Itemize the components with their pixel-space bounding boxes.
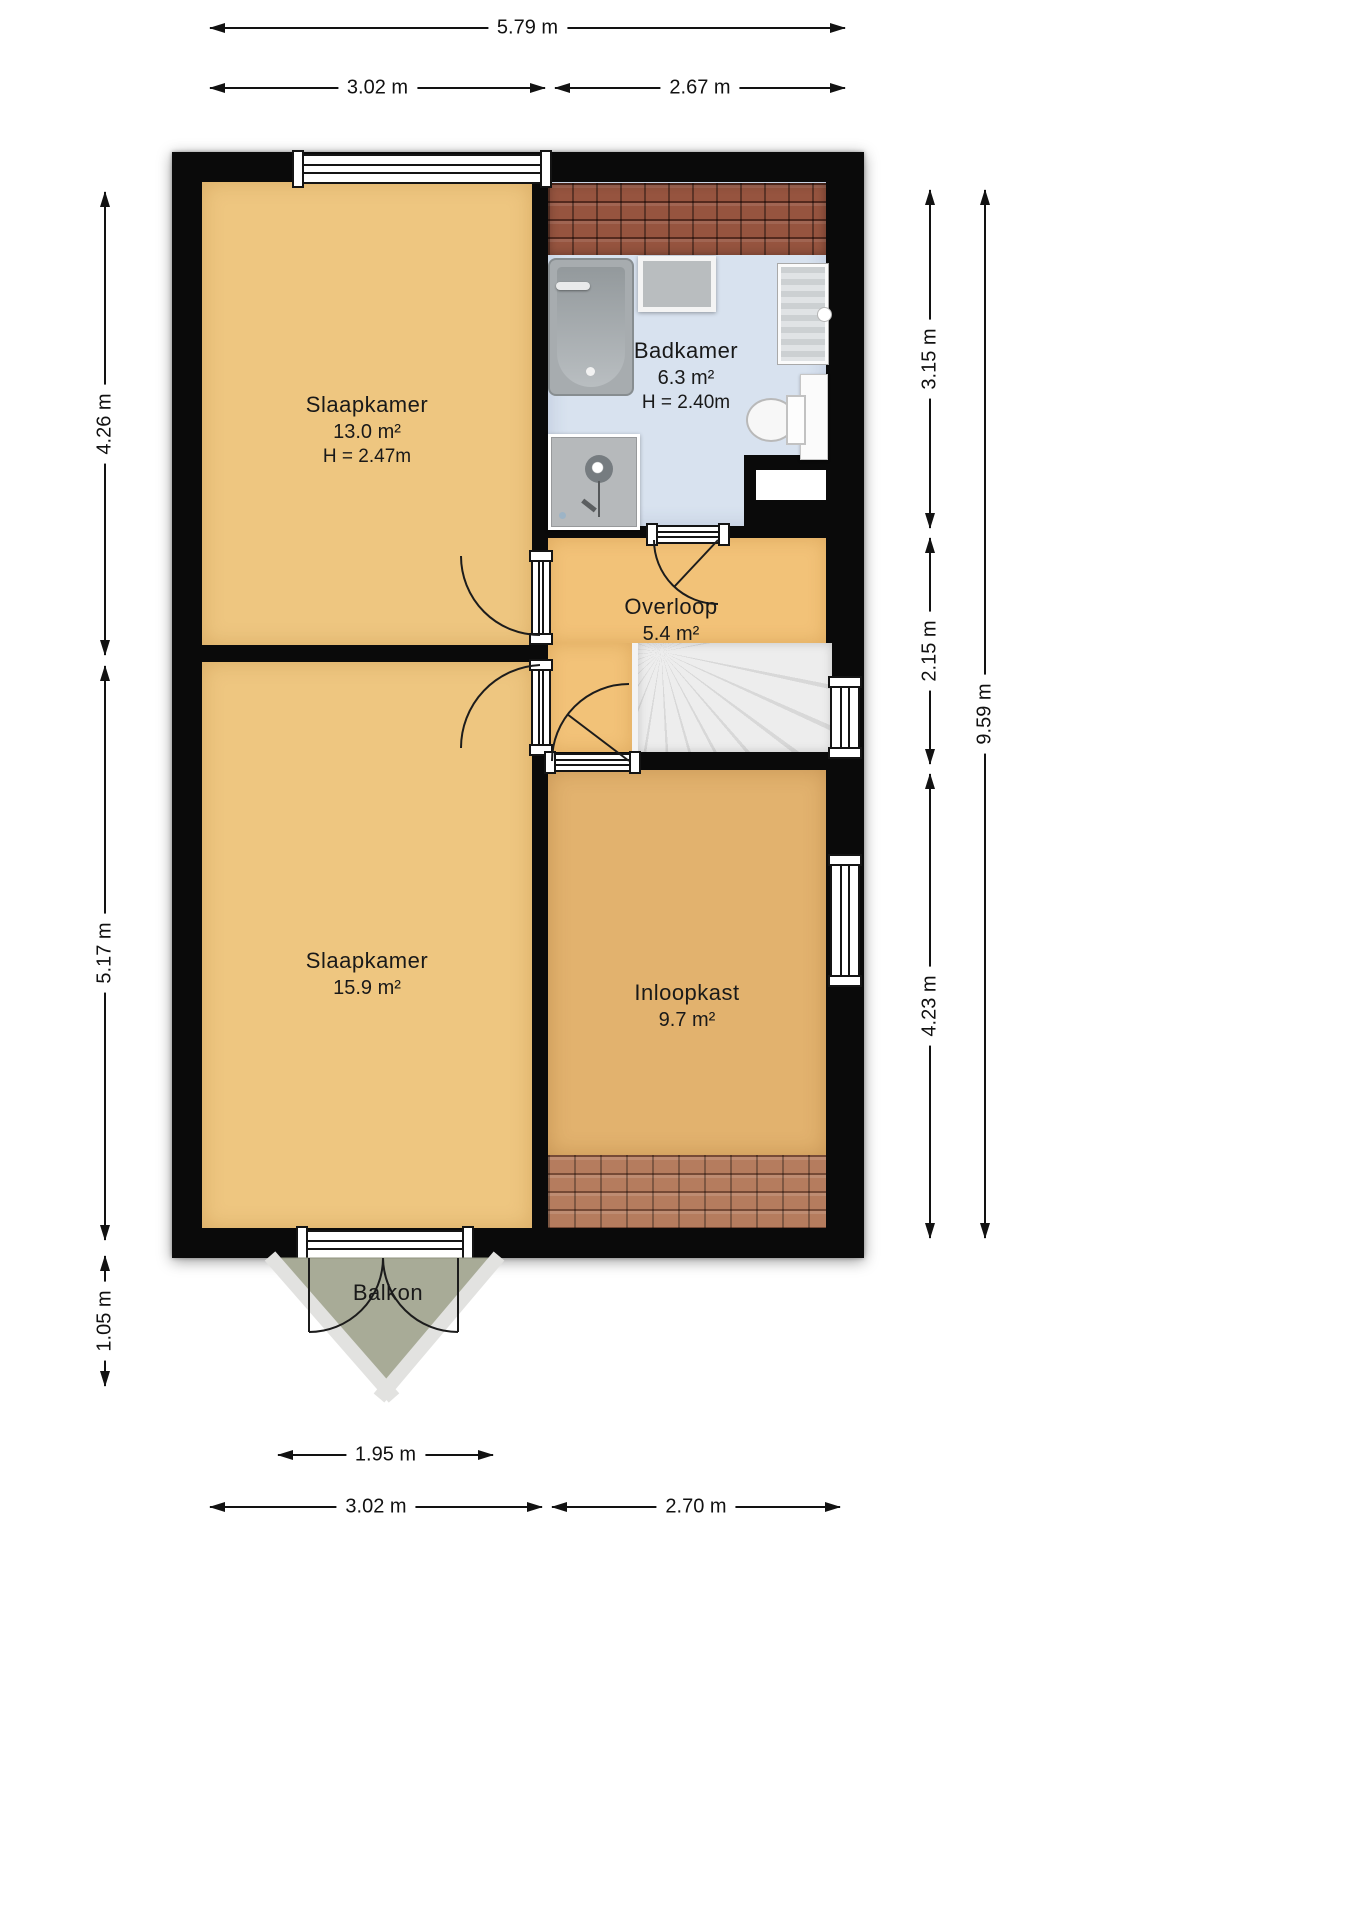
balcony-deck	[276, 1258, 493, 1388]
room-slaapkamer-2-floor	[202, 662, 532, 1228]
door-balkon-double	[303, 1230, 468, 1260]
room-height: H = 2.40m	[566, 392, 806, 414]
room-area: 6.3 m²	[566, 367, 806, 390]
dim-right-inloopkast: 4.23 m	[920, 774, 940, 1238]
room-area: 15.9 m²	[227, 977, 507, 1000]
floor-plan-canvas: Slaapkamer 13.0 m² H = 2.47m Badkamer 6.…	[0, 0, 1358, 1920]
door-slaapkamer-1	[531, 556, 551, 639]
dim-label: 1.95 m	[346, 1443, 425, 1468]
dim-label: 2.15 m	[918, 611, 943, 690]
label-slaapkamer-2: Slaapkamer 15.9 m²	[227, 948, 507, 1000]
door-post	[529, 633, 553, 645]
window-post	[828, 854, 862, 866]
room-height: H = 2.47m	[227, 446, 507, 468]
window-right-inloopkast	[830, 862, 860, 979]
balcony-rail-left	[270, 1256, 394, 1398]
room-area: 5.4 m²	[551, 623, 791, 646]
room-name: Badkamer	[566, 338, 806, 364]
room-name: Slaapkamer	[227, 948, 507, 974]
window-post	[828, 975, 862, 987]
dim-right-badkamer: 3.15 m	[920, 190, 940, 528]
door-post	[718, 523, 730, 546]
room-overloop-floor-left	[548, 643, 632, 752]
door-post	[646, 523, 658, 546]
room-name: Inloopkast	[547, 980, 827, 1006]
shower	[548, 434, 640, 530]
room-inloopkast-floor	[548, 770, 826, 1155]
dim-right-overall: 9.59 m	[975, 190, 995, 1238]
sloped-roof-tiles-top	[548, 183, 826, 255]
dim-left-upper: 4.26 m	[95, 192, 115, 655]
dim-label: 1.05 m	[93, 1281, 118, 1360]
dim-label: 9.59 m	[973, 674, 998, 753]
room-name: Slaapkamer	[227, 392, 507, 418]
label-inloopkast: Inloopkast 9.7 m²	[547, 980, 827, 1032]
bathtub-faucet	[556, 282, 590, 290]
window-top-bedroom	[298, 154, 546, 184]
door-post	[544, 751, 556, 774]
dim-bottom-balcony: 1.95 m	[278, 1445, 493, 1465]
label-overloop: Overloop 5.4 m²	[551, 594, 791, 646]
radiator-valve	[817, 307, 832, 322]
window-post	[828, 676, 862, 688]
window-post	[540, 150, 552, 188]
dim-label: 2.67 m	[660, 76, 739, 101]
balcony-rail-right	[379, 1256, 499, 1398]
dim-top-right-section: 2.67 m	[555, 78, 845, 98]
window-post	[292, 150, 304, 188]
dim-left-balcony: 1.05 m	[95, 1256, 115, 1386]
sloped-roof-tiles-bottom	[548, 1155, 826, 1228]
room-name: Overloop	[551, 594, 791, 620]
door-post	[629, 751, 641, 774]
dim-right-overloop: 2.15 m	[920, 538, 940, 764]
label-badkamer: Badkamer 6.3 m² H = 2.40m	[566, 338, 806, 414]
door-slaapkamer-2	[531, 665, 551, 752]
shower-head	[585, 455, 613, 483]
dim-label: 2.70 m	[656, 1495, 735, 1520]
skylight-window	[638, 256, 716, 312]
shower-drain	[559, 512, 566, 519]
dim-label: 5.17 m	[93, 913, 118, 992]
door-post	[296, 1226, 308, 1262]
door-post	[529, 659, 553, 671]
window-right-stairwell	[830, 684, 860, 751]
door-post	[529, 550, 553, 562]
dim-label: 3.15 m	[918, 319, 943, 398]
dim-label: 4.26 m	[93, 384, 118, 463]
dim-label: 3.02 m	[336, 1495, 415, 1520]
dim-top-left-section: 3.02 m	[210, 78, 545, 98]
dim-top-overall: 5.79 m	[210, 18, 845, 38]
label-balkon: Balkon	[308, 1280, 468, 1306]
dim-bottom-right-section: 2.70 m	[552, 1497, 840, 1517]
shower-handle	[581, 499, 597, 513]
window-post	[828, 747, 862, 759]
label-slaapkamer-1: Slaapkamer 13.0 m² H = 2.47m	[227, 392, 507, 468]
dim-left-lower: 5.17 m	[95, 666, 115, 1240]
wall-niche	[756, 470, 826, 500]
room-name: Balkon	[308, 1280, 468, 1306]
door-post	[462, 1226, 474, 1262]
room-area: 9.7 m²	[547, 1009, 827, 1032]
dim-label: 4.23 m	[918, 966, 943, 1045]
dim-bottom-left-section: 3.02 m	[210, 1497, 542, 1517]
door-badkamer	[654, 525, 722, 544]
dim-label: 3.02 m	[338, 76, 417, 101]
room-area: 13.0 m²	[227, 421, 507, 444]
door-inloopkast	[552, 753, 633, 772]
dim-label: 5.79 m	[488, 16, 567, 41]
winder-staircase	[632, 643, 832, 752]
shower-stem	[598, 481, 600, 517]
